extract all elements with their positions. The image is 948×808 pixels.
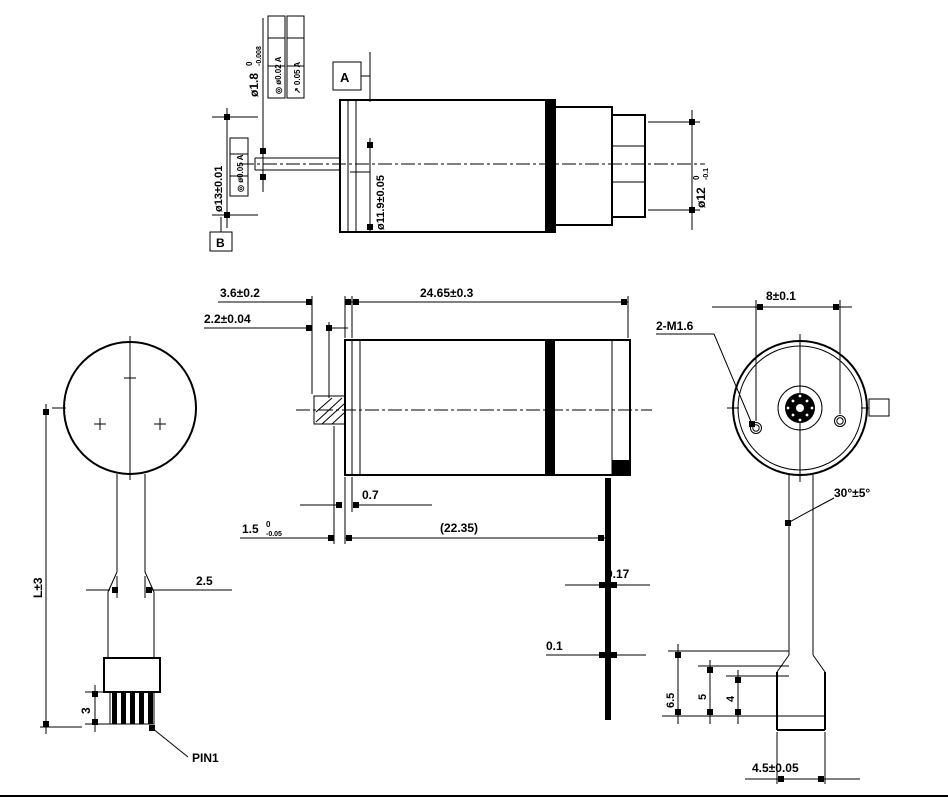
dim-pinion-width: 2.2±0.04 <box>204 312 251 326</box>
front-end-view <box>64 336 196 724</box>
gdt-frame-1: ◎ ø0.02 A <box>274 56 283 94</box>
pin1-callout: PIN1 <box>149 725 219 765</box>
rear-end-view <box>662 334 889 730</box>
dim-step-3: 4 <box>725 695 737 702</box>
datum-a-label: A <box>340 70 350 85</box>
drawing-canvas: ø1.8 0 -0.008 ◎ ø0.02 A ↗ 0.05 A A ø13±0… <box>0 0 948 808</box>
dim-terminal-thickness: 0.17 <box>606 567 630 581</box>
pin1-label: PIN1 <box>192 751 219 765</box>
dim-flange-thickness: 0.7 <box>362 488 379 502</box>
dim-body-length: 24.65±0.3 <box>420 286 474 300</box>
dim-rear-diameter-tol-upper: 0 <box>692 175 701 180</box>
side-view-shaft-length-dim: 1.5 0 -0.05 <box>240 426 345 544</box>
top-view-bearing-diameter-dim: ø13±0.01 ◎ ø0.05 A <box>212 108 258 228</box>
dim-tab-width: 4.5±0.05 <box>752 761 799 775</box>
datum-b-label: B <box>216 236 225 250</box>
gdt-frame-bearing: ◎ ø0.05 A <box>236 154 245 192</box>
dim-shaft-length-tol-upper: 0 <box>266 520 271 529</box>
rear-view-tab-width-dim: 4.5±0.05 <box>745 732 860 784</box>
dim-rear-diameter-tol-lower: -0.1 <box>703 168 710 180</box>
front-view-cable-length-dim: L±3 <box>31 404 82 734</box>
front-view-pin-length-dim: 3 <box>79 685 110 732</box>
side-view-body-length-dim: 24.65±0.3 <box>352 286 628 338</box>
side-view-terminal-tip-dim: 0.1 <box>546 639 646 658</box>
dim-shaft-diameter-value: ø1.8 <box>247 73 261 97</box>
rear-view-step-dims: 6.5 5 4 <box>665 644 741 724</box>
dim-reference-length: (22.35) <box>440 521 478 535</box>
dim-terminal-tip-thickness: 0.1 <box>546 639 563 653</box>
screw-callout-label: 2-M1.6 <box>656 319 694 333</box>
rear-view-screw-callout: 2-M1.6 <box>656 319 755 427</box>
gdt-frame-2: ↗ 0.05 A <box>293 62 302 94</box>
dim-shaft-length-value: 1.5 <box>242 522 259 536</box>
rear-view-angle-dim: 30°±5° <box>785 486 870 526</box>
dim-step-1: 6.5 <box>665 693 677 708</box>
dim-angle: 30°±5° <box>834 486 870 500</box>
dim-shaft-length-tol-lower: -0.05 <box>266 531 282 538</box>
top-view-rear-diameter-dim: ø12 0 -0.1 <box>648 110 710 230</box>
dim-bearing-diameter: ø13±0.01 <box>213 166 225 212</box>
dim-cable-length: L±3 <box>31 577 45 598</box>
dim-pin-length: 3 <box>79 707 93 714</box>
dim-hole-spacing: 8±0.1 <box>766 289 796 303</box>
dim-pinion-offset: 3.6±0.2 <box>220 286 260 300</box>
side-view-reference-length-dim: (22.35) <box>345 521 605 541</box>
feature-control-frames: ◎ ø0.02 A ↗ 0.05 A <box>268 16 304 98</box>
dim-rear-diameter-value: ø12 <box>694 187 708 208</box>
dim-body-diameter: ø11.9±0.05 <box>375 175 387 230</box>
side-view-pinion-offset-dim: 3.6±0.2 <box>218 286 362 394</box>
top-assembly-view <box>240 100 705 232</box>
side-view-pinion-width-dim: 2.2±0.04 <box>204 312 348 398</box>
dim-step-2: 5 <box>697 694 709 700</box>
side-view-flange-thickness-dim: 0.7 <box>300 477 432 512</box>
dim-shaft-diameter-tol-lower: -0.008 <box>256 46 263 66</box>
dim-shaft-diameter-tol-upper: 0 <box>245 61 254 66</box>
datum-a-flag: A <box>333 52 370 102</box>
datum-b-flag: B <box>210 217 232 251</box>
dim-cable-width: 2.5 <box>196 574 213 588</box>
engineering-drawing-sheet: ø1.8 0 -0.008 ◎ ø0.02 A ↗ 0.05 A A ø13±0… <box>0 0 948 808</box>
